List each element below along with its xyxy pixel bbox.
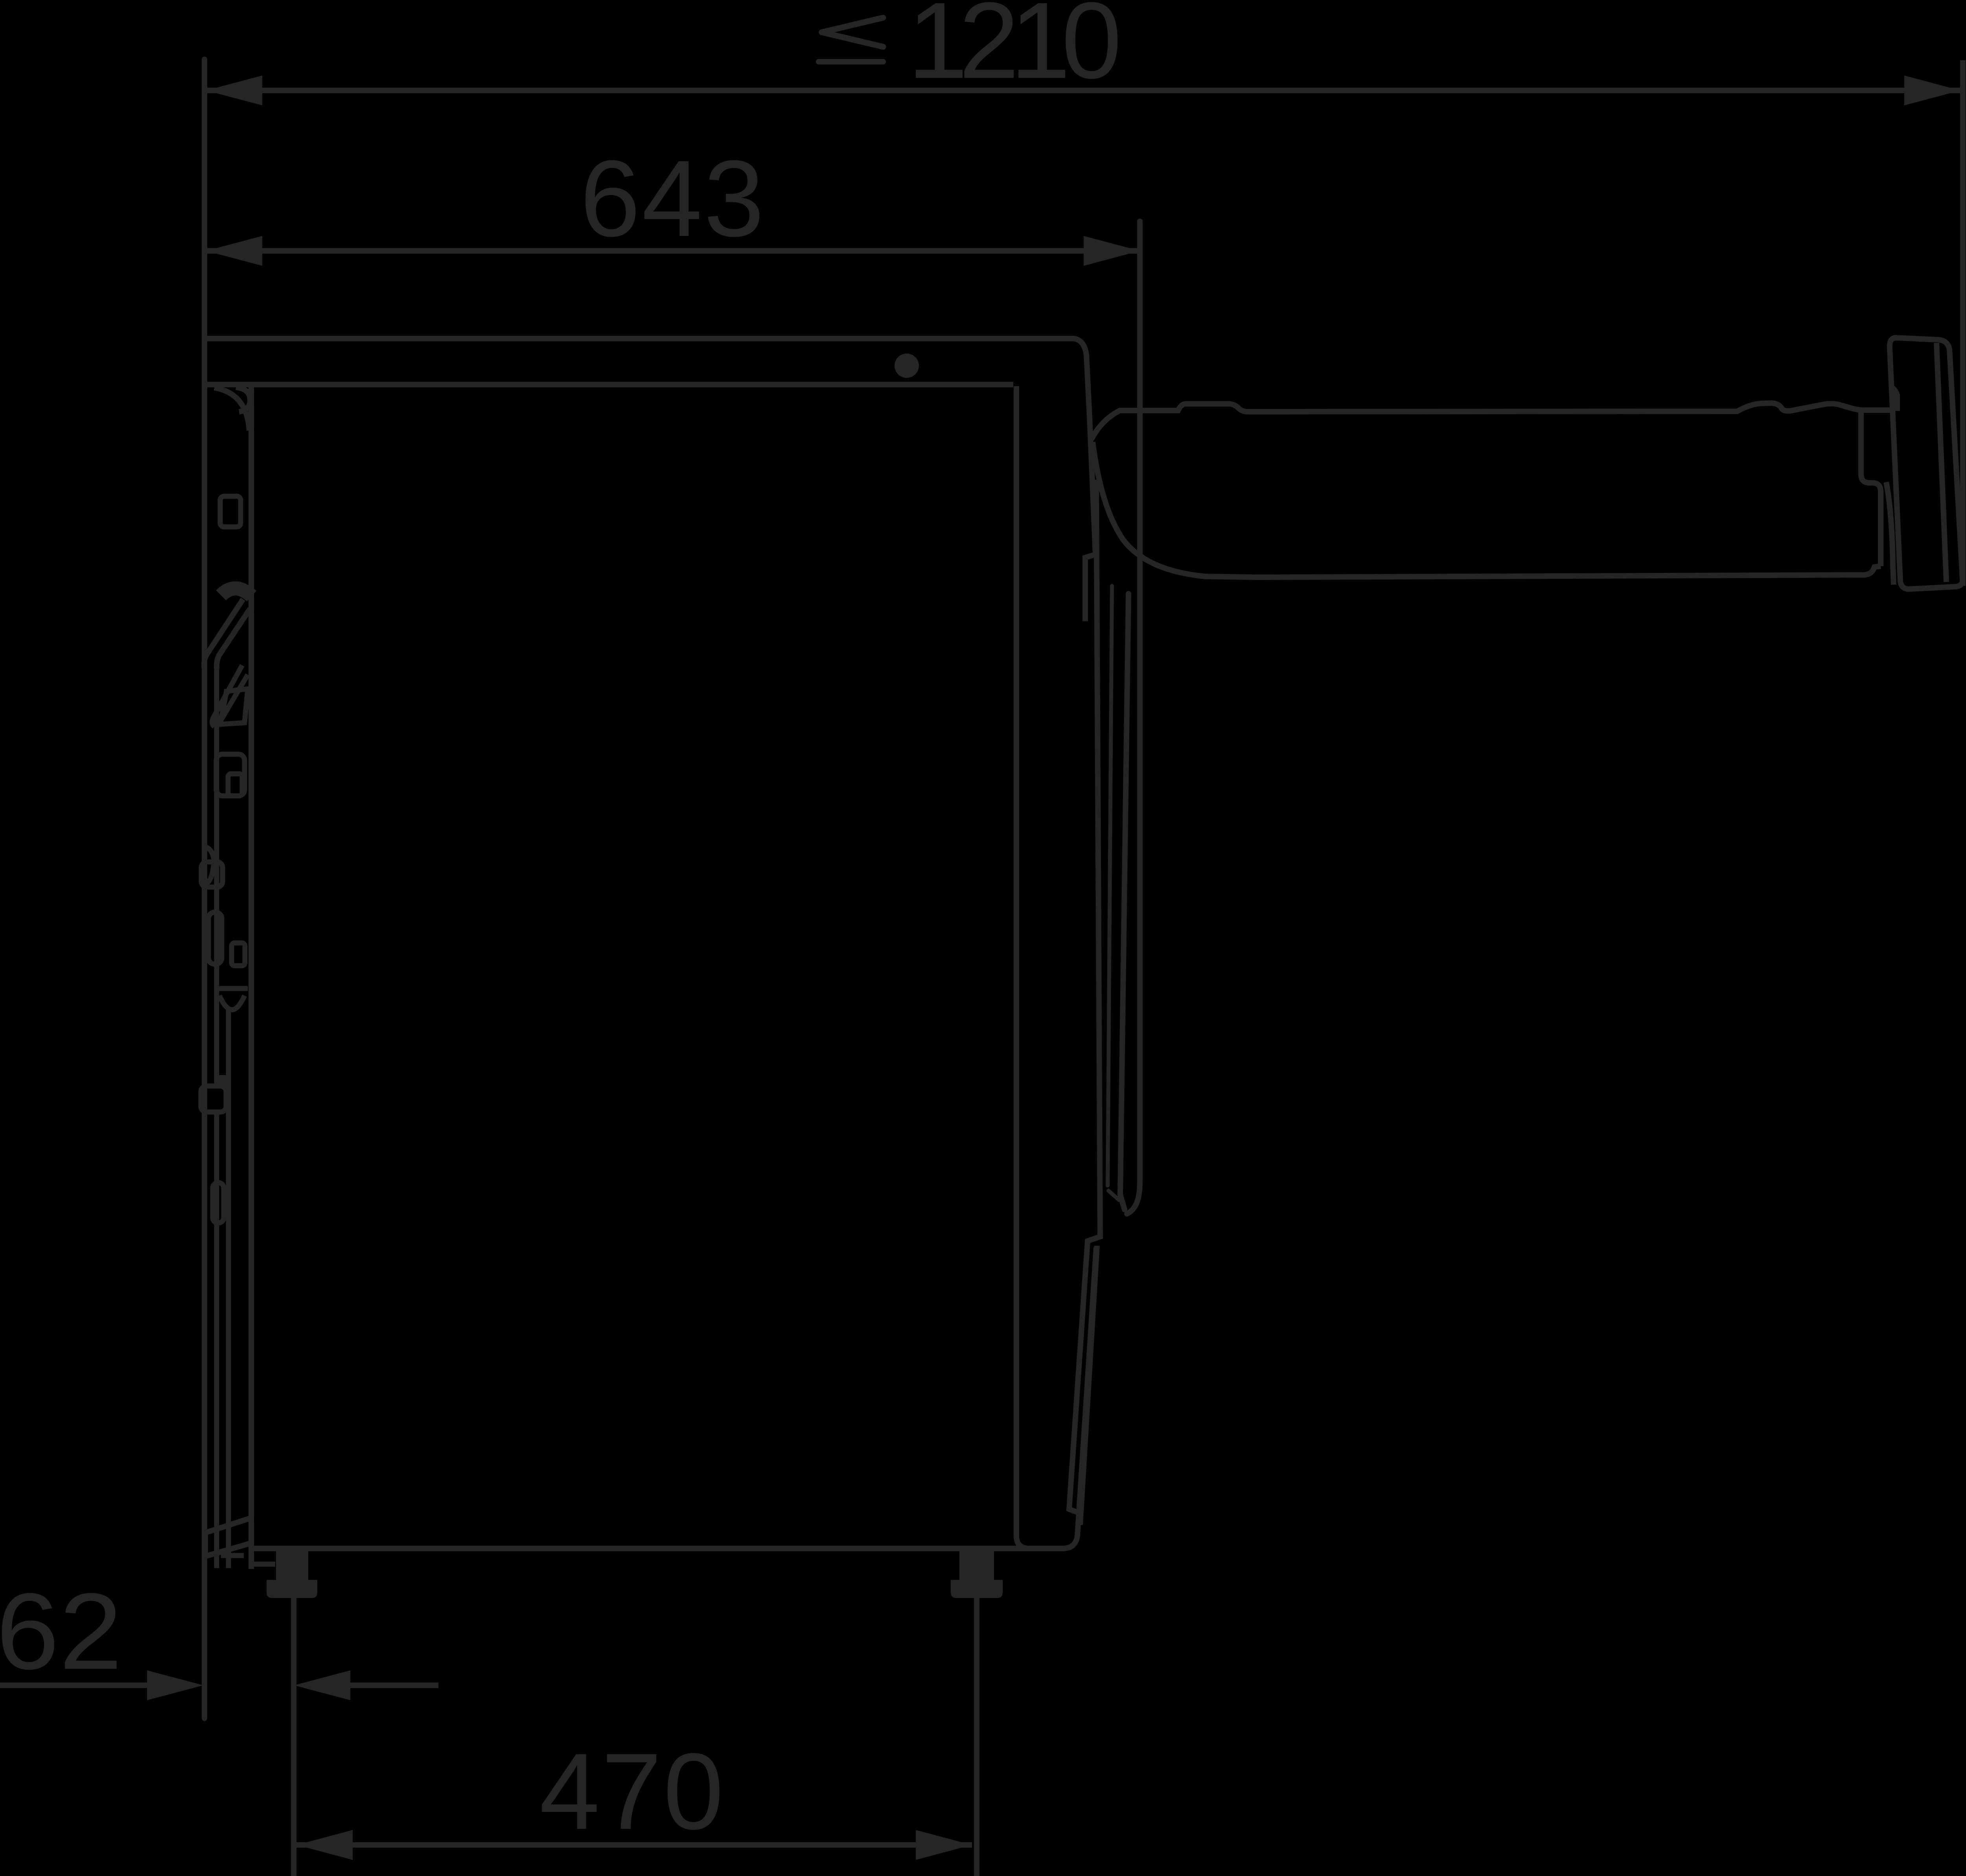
svg-text:1210: 1210 [908,0,1119,101]
svg-text:62: 62 [0,1570,122,1692]
svg-text:470: 470 [539,1731,725,1852]
svg-text:643: 643 [580,138,766,259]
